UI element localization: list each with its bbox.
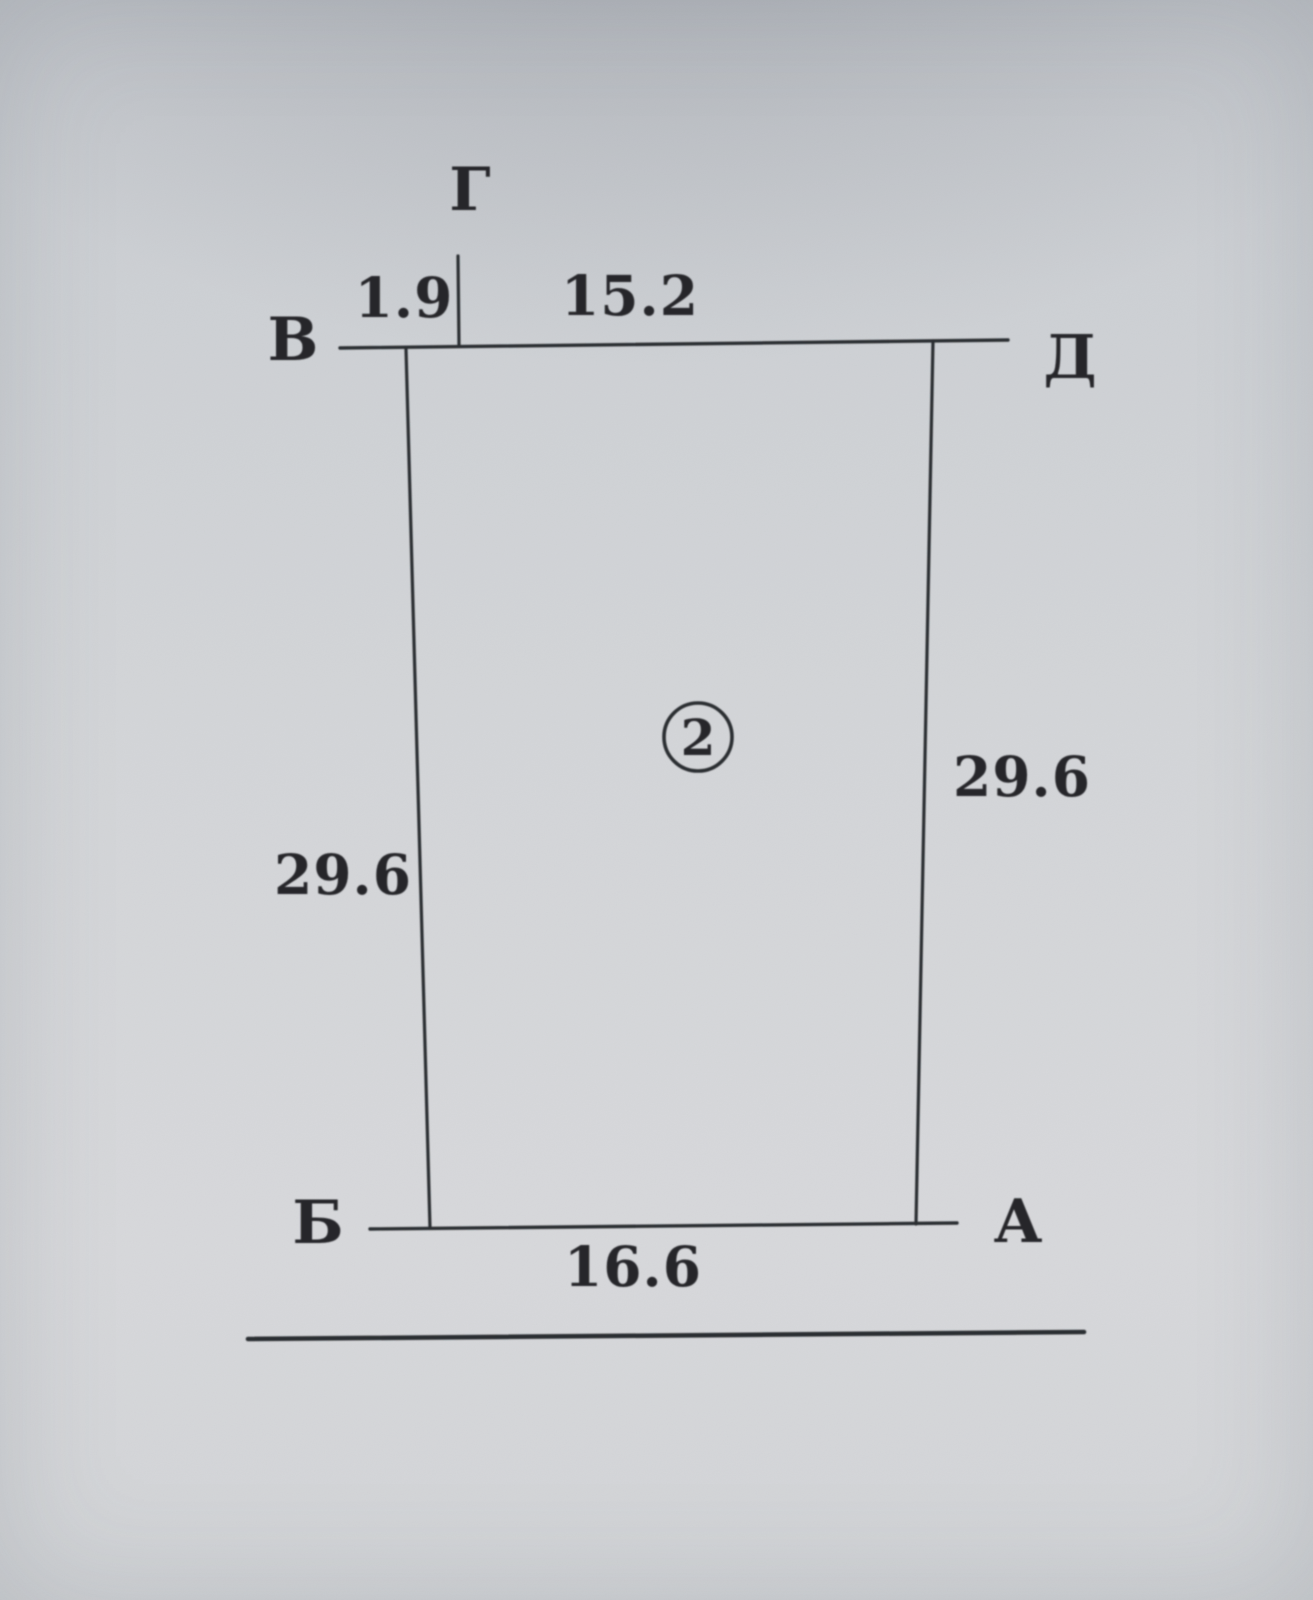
measure-bottom-side: 16.6 <box>564 1234 702 1299</box>
point-label-b: Б <box>292 1188 343 1258</box>
diagram-canvas: 2 Г В Д Б А 1.9 15.2 29.6 29.6 16.6 <box>0 0 1313 1600</box>
paper-grain-texture <box>0 0 1313 1600</box>
point-label-g: Г <box>449 155 490 225</box>
measure-left-side: 29.6 <box>274 842 412 907</box>
measure-top-left: 1.9 <box>355 265 454 330</box>
scanned-page: 2 Г В Д Б А 1.9 15.2 29.6 29.6 16.6 <box>0 0 1313 1600</box>
measure-right-side: 29.6 <box>953 744 1091 809</box>
measure-top-right: 15.2 <box>561 263 699 328</box>
point-label-v: В <box>268 305 319 375</box>
point-label-d: Д <box>1043 323 1096 393</box>
plot-number: 2 <box>681 708 716 767</box>
point-label-a: А <box>994 1187 1043 1257</box>
tick-point-g <box>458 256 459 346</box>
